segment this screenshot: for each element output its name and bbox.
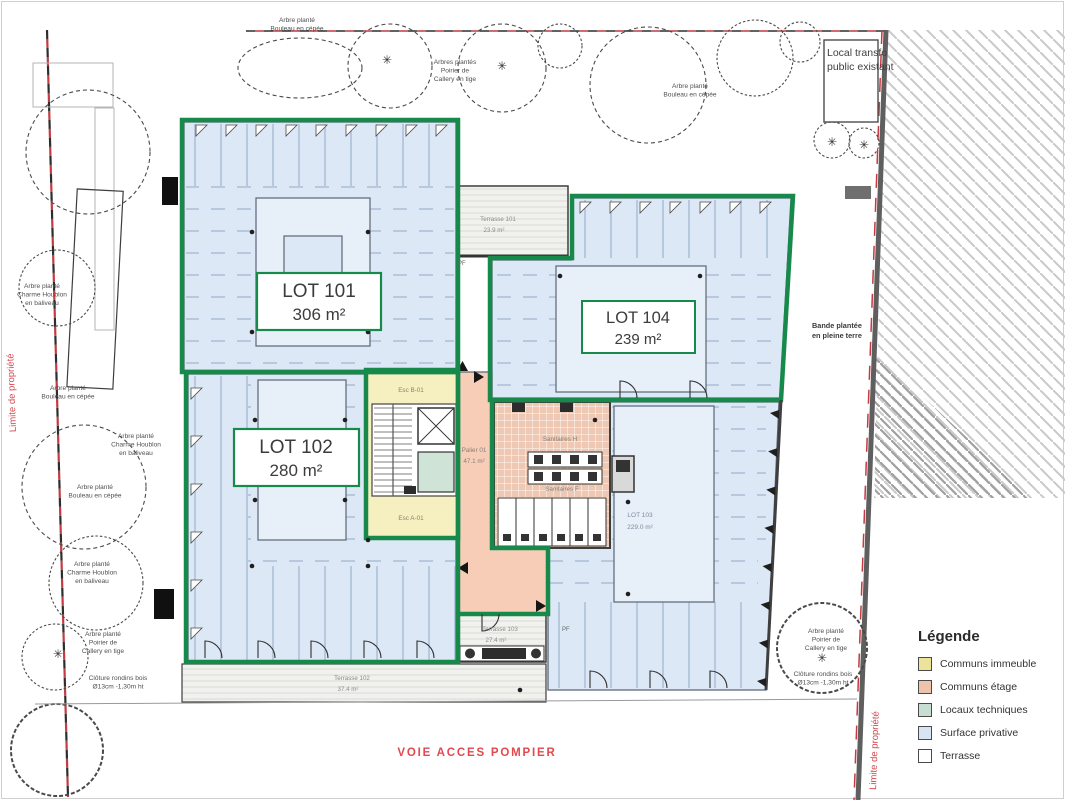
legend-item: Communs étage [918,680,1063,694]
palier-area-label: 47.1 m² [463,458,484,465]
lot-101-area: 306 m² [293,305,346,324]
tree-label: Poirier de [812,636,841,643]
terrasse-102-name: Terrasse 102 [334,675,370,682]
lot-102-name: LOT 102 [259,437,333,458]
tree-symbol-icon: ✳ [382,53,392,67]
palier-name-label: Palier 01 [462,447,487,454]
legend-panel: Légende Communs immeubleCommuns étageLoc… [918,628,1063,772]
legend-swatch [918,749,932,763]
legend-label: Surface privative [940,727,1018,739]
tree-label: Callery en tige [805,645,847,652]
tree-label: Charme Houblon [111,441,161,448]
tree-label: Arbre planté [50,385,86,392]
lot-101-label-box: LOT 101 306 m² [257,273,381,330]
tree-label: Bouleau en cépée [68,492,121,499]
lot-101-name: LOT 101 [282,281,356,302]
tree-label: en baliveau [25,300,59,307]
tree-label: Clôture rondins bois [89,675,148,682]
tree-label: en baliveau [75,578,109,585]
tree-label: Callery en tige [434,76,476,83]
legend-item: Terrasse [918,749,1063,763]
legend-swatch [918,680,932,694]
esc-b-label: Esc B-01 [398,387,424,394]
tree-label: Clôture rondins bois [794,671,853,678]
tree-label: Arbre planté [118,433,154,440]
terrasse-101-name: Terrasse 101 [480,216,516,223]
legend-label: Communs immeuble [940,658,1036,670]
local-technique-zone [418,452,454,492]
voie-acces-pompier-label: VOIE ACCES POMPIER [397,747,556,759]
legend-swatch [918,657,932,671]
terrasse-101-area: 23.9 m² [484,227,505,234]
pf-label-1: PF [458,261,466,267]
lot-102-area: 280 m² [270,461,323,480]
tree-symbol-icon: ✳ [827,135,837,149]
tree-label: Arbre planté [77,484,113,491]
legend-items: Communs immeubleCommuns étageLocaux tech… [918,657,1063,763]
tree-symbol-icon: ✳ [859,138,869,152]
tree-label: Ø13cm -1,30m ht [93,683,144,690]
bande-plantee-label-1: Bande plantée [812,321,862,330]
floor-plan-canvas: ✳✳✳✳✳✳ [0,0,1065,800]
tree-symbol-icon: ✳ [817,651,827,665]
tree-label: Arbre planté [74,561,110,568]
tree-symbol-icon: ✳ [53,647,63,661]
legend-item: Locaux techniques [918,703,1063,717]
tree-label: Bouleau en cépée [41,393,94,400]
legend-title: Légende [918,628,1063,645]
terrasse-102-area: 37.4 m² [338,686,359,693]
tree-label: Charme Houblon [67,569,117,576]
tree-label: Arbre planté [672,83,708,90]
stair-block [366,370,458,538]
tree-label: Arbres plantés [434,59,477,66]
legend-swatch [918,726,932,740]
legend-swatch [918,703,932,717]
lot-104-name: LOT 104 [606,309,670,327]
sanitaires-f-label: Sanitaires F [545,486,579,493]
legend-label: Terrasse [940,750,980,762]
bande-plantee-label-2: en pleine terre [812,331,862,340]
tree-label: Callery en tige [82,648,124,655]
esc-a-label: Esc A-01 [398,515,424,522]
neighbor-parcel-hatch [874,30,1065,498]
sanitaires-h-label: Sanitaires H [543,436,578,443]
tree-label: Arbre planté [808,628,844,635]
site-plan-svg: ✳✳✳✳✳✳ [0,0,1065,800]
tree-label: Poirier de [89,639,118,646]
lot-102-label-box: LOT 102 280 m² [234,429,359,486]
lot-104-area: 239 m² [615,331,662,348]
tree-symbol-icon: ✳ [497,59,507,73]
pf-label-2: PF [562,627,570,633]
terrasse-103-name: Terrasse 103 [482,626,518,633]
lot-103-area: 229.0 m² [627,524,653,531]
local-transfo-label-1: Local transfo [827,47,887,59]
legend-label: Communs étage [940,681,1017,693]
tree-label: Ø13cm -1,30m ht [798,679,849,686]
tree-label: Bouleau en cépée [270,25,323,32]
legend-item: Communs immeuble [918,657,1063,671]
tree-label: Bouleau en cépée [663,91,716,98]
tree-label: Arbre planté [279,17,315,24]
tree-label: en baliveau [119,450,153,457]
tree-label: Poirier de [441,67,470,74]
tree-label: Arbre planté [85,631,121,638]
lot-103-name: LOT 103 [627,512,653,519]
tree-label: Charme Houblon [17,291,67,298]
lot-104-label-box: LOT 104 239 m² [582,301,695,353]
legend-item: Surface privative [918,726,1063,740]
local-transfo-label-2: public existant [827,61,894,73]
terrasse-103-area: 27.4 m² [486,637,507,644]
tree-label: Arbre planté [24,283,60,290]
legend-label: Locaux techniques [940,704,1028,716]
